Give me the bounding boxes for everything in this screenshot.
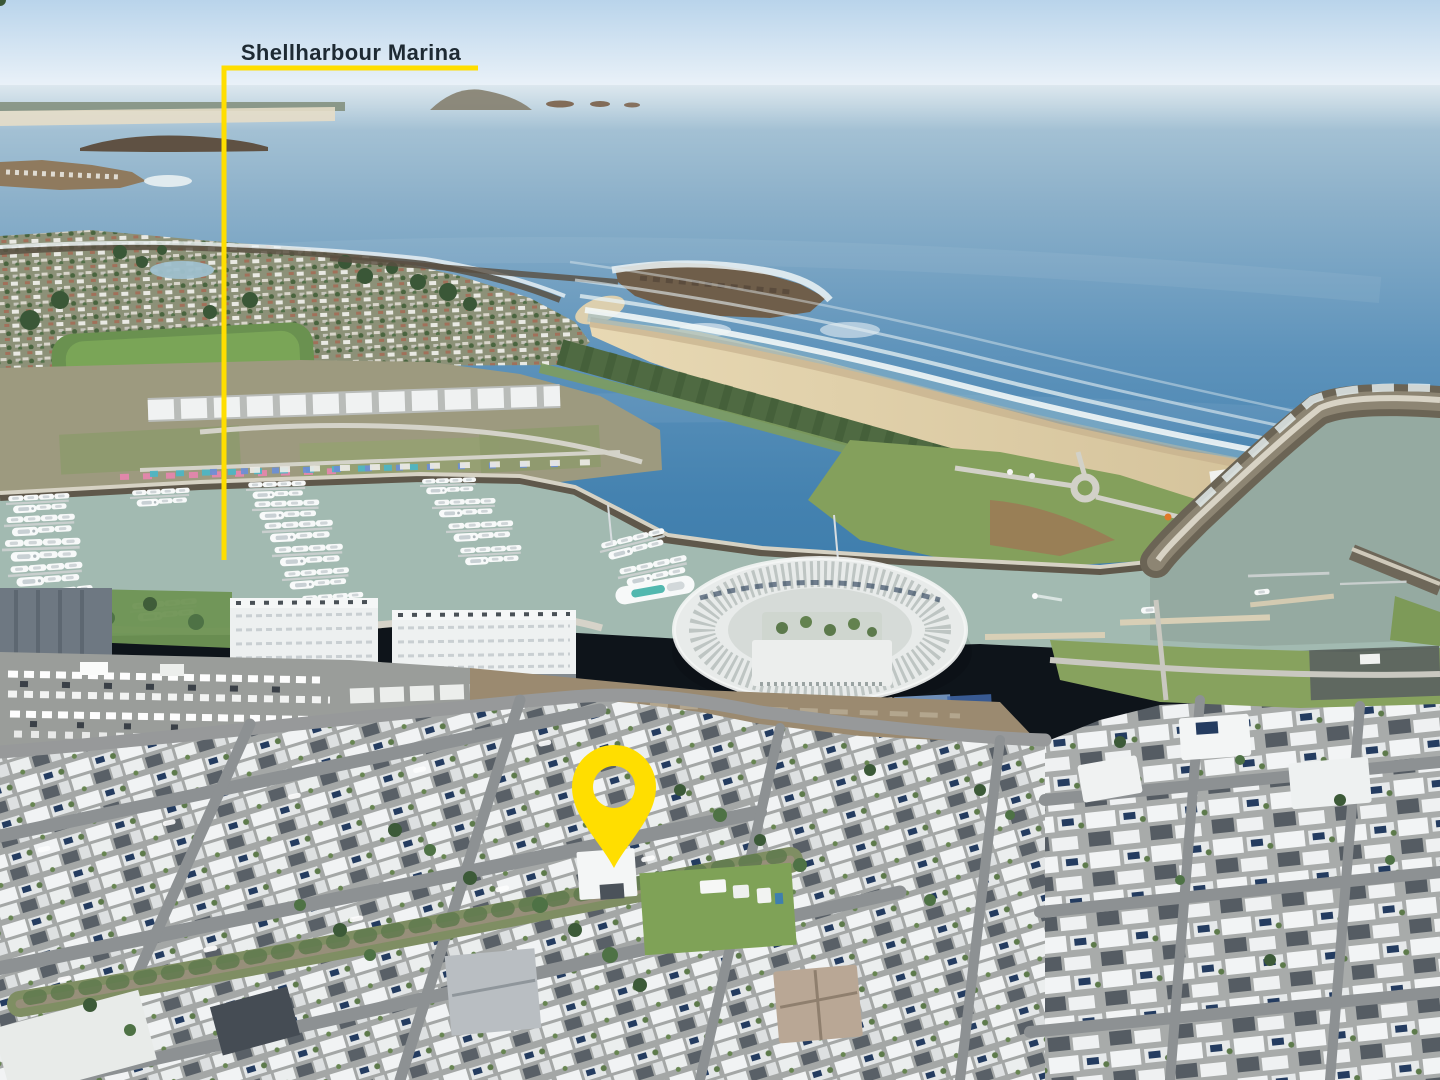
rock-pool xyxy=(150,261,214,279)
sky xyxy=(0,0,1440,92)
circular-building xyxy=(672,558,972,710)
aerial-photo: Shellharbour Marina xyxy=(0,0,1440,1080)
callout-label: Shellharbour Marina xyxy=(241,40,462,65)
park-lot xyxy=(639,863,796,955)
caravan xyxy=(700,879,727,894)
aerial-photo-canvas: Shellharbour Marina xyxy=(0,0,1440,1080)
